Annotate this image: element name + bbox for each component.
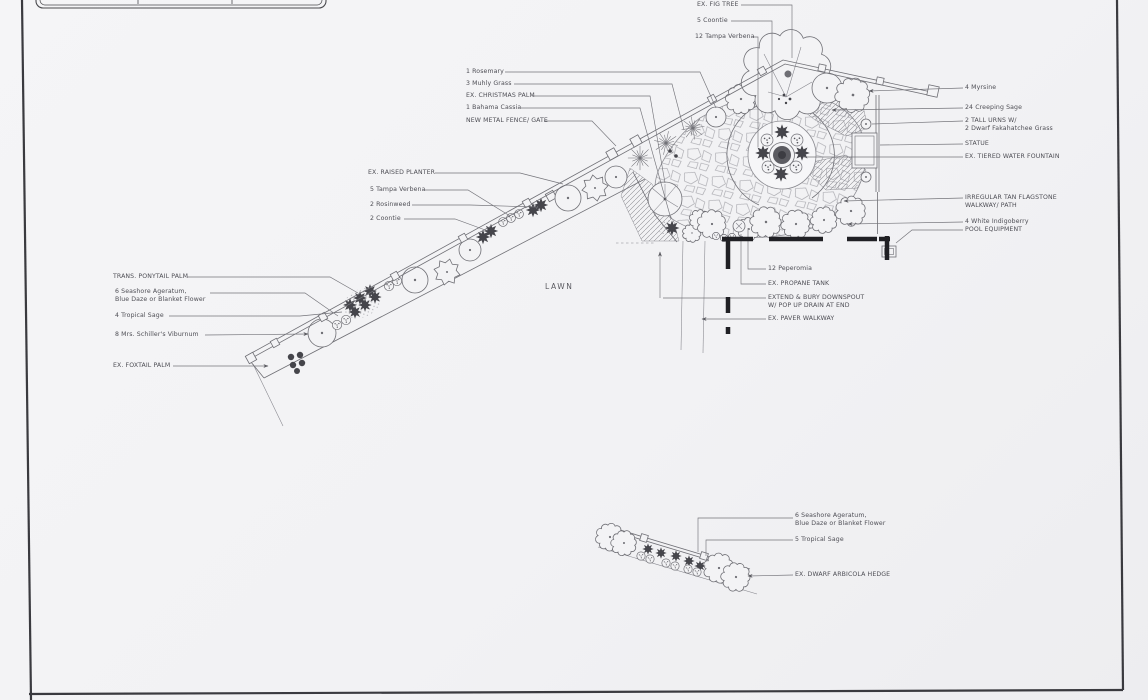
callout-ex-propane-tank: EX. PROPANE TANK [768, 280, 829, 288]
callout-rosinweed-2: 2 Rosinweed [370, 201, 411, 209]
callout-tropical-sage-4: 4 Tropical Sage [115, 312, 164, 320]
callout-ex-tiered-water-fountain: EX. TIERED WATER FOUNTAIN [965, 153, 1060, 161]
callout-trans-ponytail-palm: TRANS. PONYTAIL PALM [113, 273, 188, 281]
callout-downspout-line2: W/ POP UP DRAIN AT END [768, 302, 864, 310]
sheet-border [22, 0, 1123, 700]
paver-walkway [681, 241, 705, 353]
callout-pool-equipment: POOL EQUIPMENT [965, 226, 1022, 234]
callout-creeping-sage-24: 24 Creeping Sage [965, 104, 1022, 112]
callout-ex-dwarf-arbicola-hedge: EX. DWARF ARBICOLA HEDGE [795, 571, 890, 579]
callout-tampa-verbena-12: 12 Tampa Verbena [695, 33, 755, 41]
landscape-plan-sheet: EX. FIG TREE 5 Coontie 12 Tampa Verbena … [0, 0, 1148, 700]
callout-muhly-grass-3: 3 Muhly Grass [466, 80, 512, 88]
callout-tall-urns-line2: 2 Dwarf Fakahatchee Grass [965, 125, 1053, 133]
christmas-palm-symbol [648, 182, 682, 216]
callout-tall-urns-line1: 2 TALL URNS W/ [965, 117, 1053, 125]
callout-coontie-2: 2 Coontie [370, 215, 401, 223]
callout-flagstone-line1: IRREGULAR TAN FLAGSTONE [965, 194, 1057, 202]
raised-planter-strip [246, 166, 645, 378]
callout-peperomia-12: 12 Peperomia [768, 265, 812, 273]
callout-ex-christmas-palm: EX. CHRISTMAS PALM [466, 92, 535, 100]
callout-bahama-cassia-1: 1 Bahama Cassia [466, 104, 521, 112]
bed-edges [253, 172, 677, 426]
callout-ageratum-lower-line1: 6 Seashore Ageratum, [795, 512, 886, 520]
callout-viburnum-8: 8 Mrs. Schiller's Viburnum [115, 331, 199, 339]
callout-downspout-line1: EXTEND & BURY DOWNSPOUT [768, 294, 864, 302]
callout-seashore-ageratum-upper: 6 Seashore Ageratum, Blue Daze or Blanke… [115, 288, 206, 305]
callout-new-metal-fence-gate: NEW METAL FENCE/ GATE [466, 117, 548, 125]
propane-tank [733, 220, 745, 232]
callout-coontie-5: 5 Coontie [697, 17, 728, 25]
callout-ageratum-lower-line2: Blue Daze or Blanket Flower [795, 520, 886, 528]
foxtail-palm-dots [288, 352, 305, 374]
callout-rosemary-1: 1 Rosemary [466, 68, 504, 76]
callout-downspout: EXTEND & BURY DOWNSPOUT W/ POP UP DRAIN … [768, 294, 864, 311]
lawn-label: LAWN [545, 283, 574, 291]
callout-ex-paver-walkway: EX. PAVER WALKWAY [768, 315, 834, 323]
lower-hedge-bed [594, 521, 757, 596]
callout-tropical-sage-5: 5 Tropical Sage [795, 536, 844, 544]
callout-flagstone-line2: WALKWAY/ PATH [965, 202, 1057, 210]
legend-table [36, 0, 326, 8]
callout-myrsine-4: 4 Myrsine [965, 84, 996, 92]
callout-flagstone-walkway: IRREGULAR TAN FLAGSTONE WALKWAY/ PATH [965, 194, 1057, 211]
callout-ex-fig-tree: EX. FIG TREE [697, 1, 739, 9]
callout-ex-raised-planter: EX. RAISED PLANTER [368, 169, 435, 177]
callout-statue: STATUE [965, 140, 989, 148]
callout-ageratum-upper-line2: Blue Daze or Blanket Flower [115, 296, 206, 304]
callout-tall-urns: 2 TALL URNS W/ 2 Dwarf Fakahatchee Grass [965, 117, 1053, 134]
callout-tampa-verbena-5: 5 Tampa Verbena [370, 186, 426, 194]
callout-ex-foxtail-palm: EX. FOXTAIL PALM [113, 362, 170, 370]
callout-seashore-ageratum-lower: 6 Seashore Ageratum, Blue Daze or Blanke… [795, 512, 886, 529]
callout-ageratum-upper-line1: 6 Seashore Ageratum, [115, 288, 206, 296]
